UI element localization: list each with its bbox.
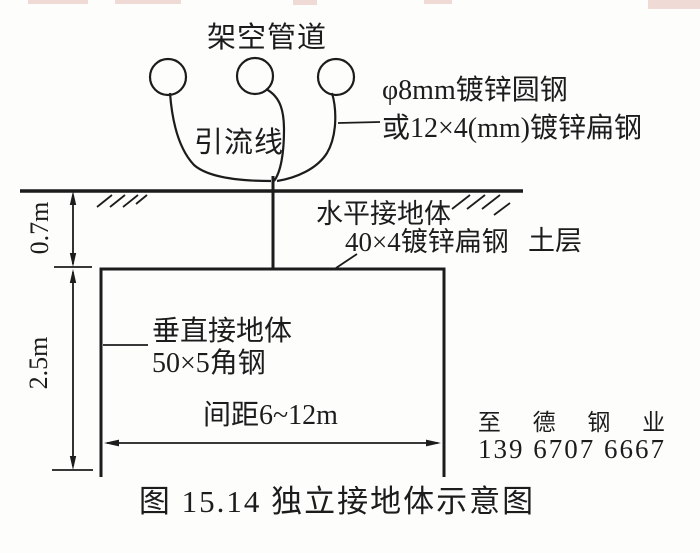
hatch-stroke <box>123 195 138 207</box>
watermark: 至 德 钢 业 139 6707 6667 <box>478 410 678 464</box>
scan-artifact <box>293 0 317 5</box>
dim-arrow-down <box>70 253 76 267</box>
dim-arrow-up <box>70 191 76 205</box>
dim-arrow-right <box>426 440 441 447</box>
overhead-pipes <box>150 58 354 95</box>
grounding-diagram-canvas: 0.7m 2.5m 间距6~12m 架空管道 引流线 φ8mm镀锌圆钢 或12×… <box>0 0 700 553</box>
electrode-length-label: 2.5m <box>24 337 53 390</box>
vertical-electrode-spec: 50×5角钢 <box>152 347 266 379</box>
lead-wire-curve-3 <box>277 93 335 181</box>
dimension-spacing: 间距6~12m <box>104 399 441 446</box>
soil-layer-label: 土层 <box>528 226 582 256</box>
ground-hatch-left <box>97 195 147 207</box>
hatch-stroke <box>97 195 112 207</box>
figure-caption: 图 15.14 独立接地体示意图 <box>139 484 535 519</box>
burial-depth-label: 0.7m <box>25 202 54 255</box>
horizontal-electrode-label: 水平接地体 <box>316 199 451 229</box>
scan-artifact <box>648 0 700 9</box>
hatch-stroke <box>110 195 125 207</box>
pipe-circle-3 <box>318 59 354 95</box>
watermark-phone: 139 6707 6667 <box>478 434 666 464</box>
hatch-stroke <box>467 195 485 209</box>
scan-artifact-smudges <box>28 0 700 9</box>
dim-arrow-up <box>70 269 76 283</box>
spacing-label: 间距6~12m <box>203 399 338 431</box>
overhead-pipeline-label: 架空管道 <box>207 21 327 54</box>
watermark-company: 至 德 钢 业 <box>478 410 678 435</box>
hatch-stroke <box>482 195 500 209</box>
dim-arrow-left <box>104 440 119 447</box>
hatch-stroke <box>494 203 510 215</box>
pipe-circle-1 <box>150 59 186 95</box>
scan-artifact <box>28 0 88 4</box>
dimension-burial-depth: 0.7m <box>25 191 92 267</box>
dim-arrow-down <box>70 456 76 470</box>
scan-artifact <box>424 0 452 4</box>
vertical-electrode-label: 垂直接地体 <box>152 315 292 347</box>
leader-conductor-spec <box>338 122 380 123</box>
conductor-spec-line2: 或12×4(mm)镀锌扁钢 <box>382 112 642 144</box>
hatch-stroke <box>452 195 470 209</box>
lead-wire-label: 引流线 <box>194 126 284 159</box>
conductor-spec-line1: φ8mm镀锌圆钢 <box>382 74 568 106</box>
ground-hatch-right <box>452 195 510 215</box>
pipe-circle-2 <box>237 58 273 94</box>
horizontal-electrode-spec: 40×4镀锌扁钢 <box>345 227 509 257</box>
dimension-electrode-length: 2.5m <box>24 269 93 470</box>
scanned-figure-page: 0.7m 2.5m 间距6~12m 架空管道 引流线 φ8mm镀锌圆钢 或12×… <box>0 0 700 553</box>
scan-artifact <box>115 0 181 4</box>
